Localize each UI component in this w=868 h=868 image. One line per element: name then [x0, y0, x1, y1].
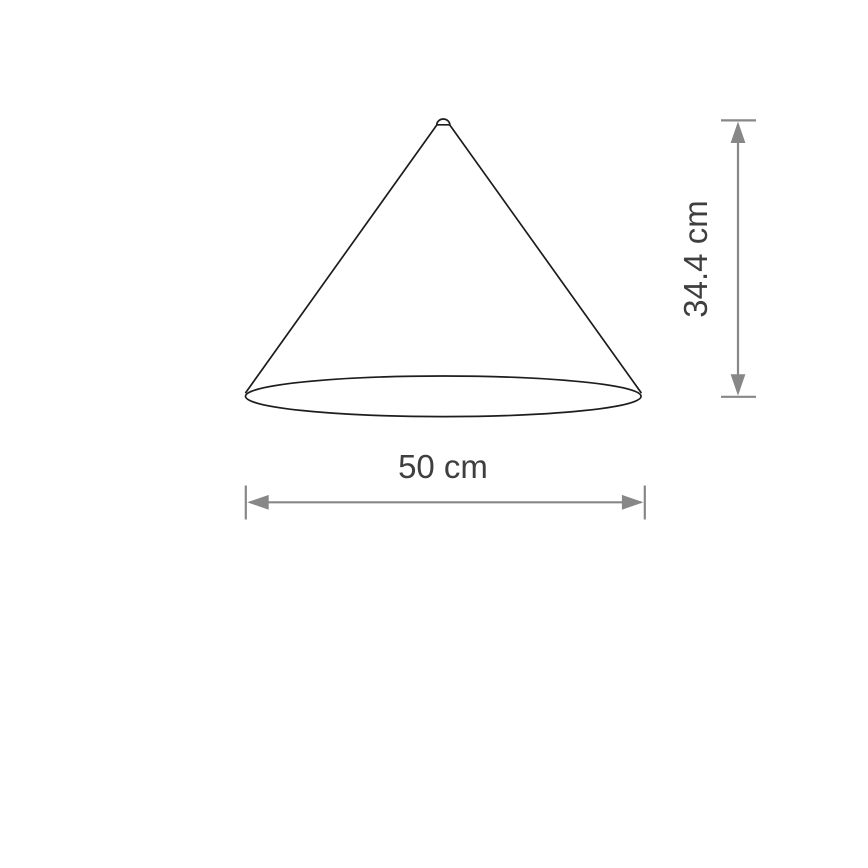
height-dimension-group — [721, 120, 756, 396]
cone-right-side — [450, 125, 641, 393]
height-dimension-label: 34.4 cm — [677, 200, 714, 317]
dimension-drawing-canvas: 50 cm 34.4 cm — [0, 0, 868, 868]
cone-left-side — [246, 125, 437, 393]
arrow-up-icon — [731, 122, 746, 144]
arrow-left-icon — [247, 495, 269, 510]
arrow-down-icon — [731, 374, 746, 396]
width-dimension-group — [246, 486, 645, 520]
cone-dimension-diagram: 50 cm 34.4 cm — [0, 0, 868, 868]
cone-base-ellipse — [245, 376, 641, 417]
width-dimension-label: 50 cm — [398, 448, 488, 485]
cone-apex-cap — [437, 119, 450, 125]
cone-outline-group — [245, 119, 641, 417]
arrow-right-icon — [622, 495, 644, 510]
